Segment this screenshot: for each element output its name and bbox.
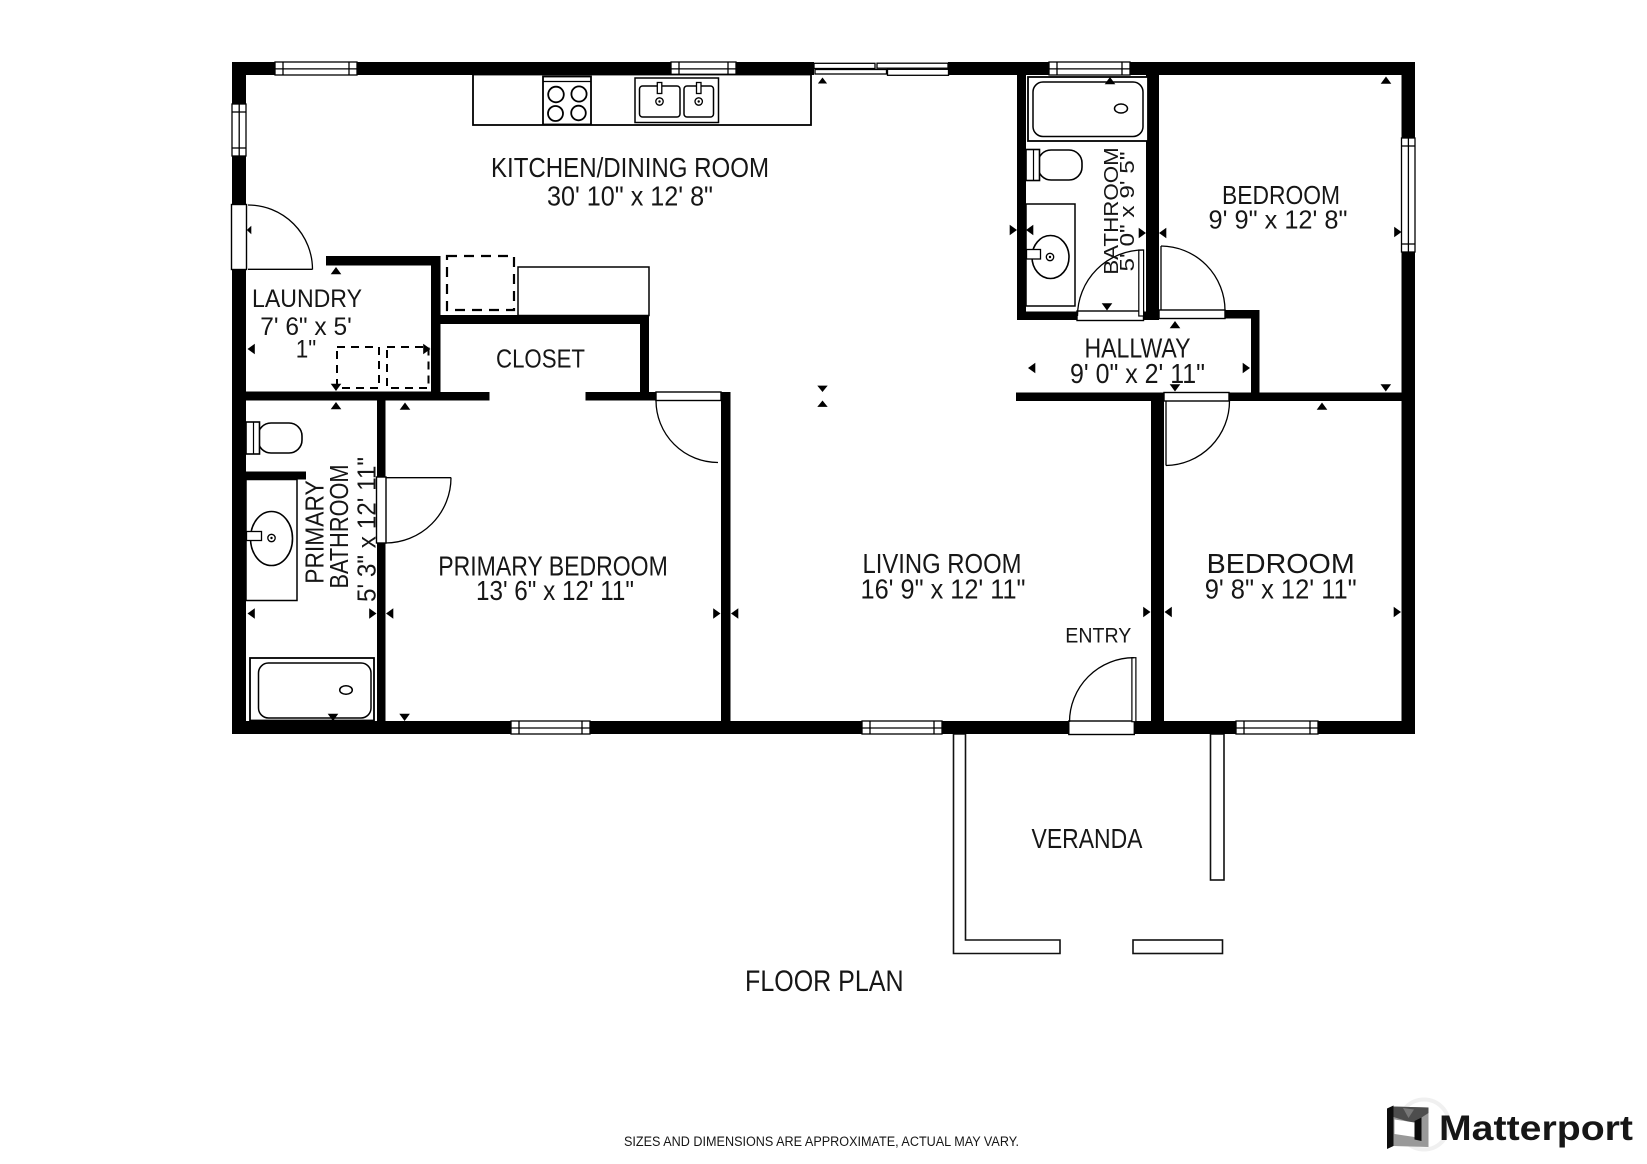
svg-text:CLOSET: CLOSET (496, 344, 585, 374)
svg-text:16' 9" x 12' 11": 16' 9" x 12' 11" (861, 574, 1026, 605)
svg-text:1": 1" (296, 336, 317, 364)
svg-text:9' 8" x 12' 11": 9' 8" x 12' 11" (1205, 574, 1357, 605)
svg-text:9' 0" x 2' 11": 9' 0" x 2' 11" (1070, 358, 1205, 389)
svg-text:13' 6" x 12' 11": 13' 6" x 12' 11" (476, 575, 634, 606)
svg-text:BATHROOM: BATHROOM (324, 465, 354, 589)
svg-text:SIZES AND DIMENSIONS ARE APPRO: SIZES AND DIMENSIONS ARE APPROXIMATE, AC… (624, 1134, 1019, 1149)
svg-text:30' 10" x 12' 8": 30' 10" x 12' 8" (547, 181, 713, 212)
svg-text:ENTRY: ENTRY (1065, 625, 1131, 648)
svg-text:FLOOR PLAN: FLOOR PLAN (745, 965, 904, 998)
svg-text:5' 3" x 12' 11": 5' 3" x 12' 11" (352, 457, 382, 602)
svg-text:Matterport: Matterport (1439, 1108, 1633, 1148)
svg-text:KITCHEN/DINING ROOM: KITCHEN/DINING ROOM (491, 152, 769, 183)
svg-text:5' 0" x 9' 5": 5' 0" x 9' 5" (1117, 152, 1139, 272)
svg-text:LAUNDRY: LAUNDRY (252, 285, 362, 313)
svg-text:9' 9" x 12' 8": 9' 9" x 12' 8" (1209, 205, 1348, 235)
svg-text:VERANDA: VERANDA (1032, 823, 1143, 854)
